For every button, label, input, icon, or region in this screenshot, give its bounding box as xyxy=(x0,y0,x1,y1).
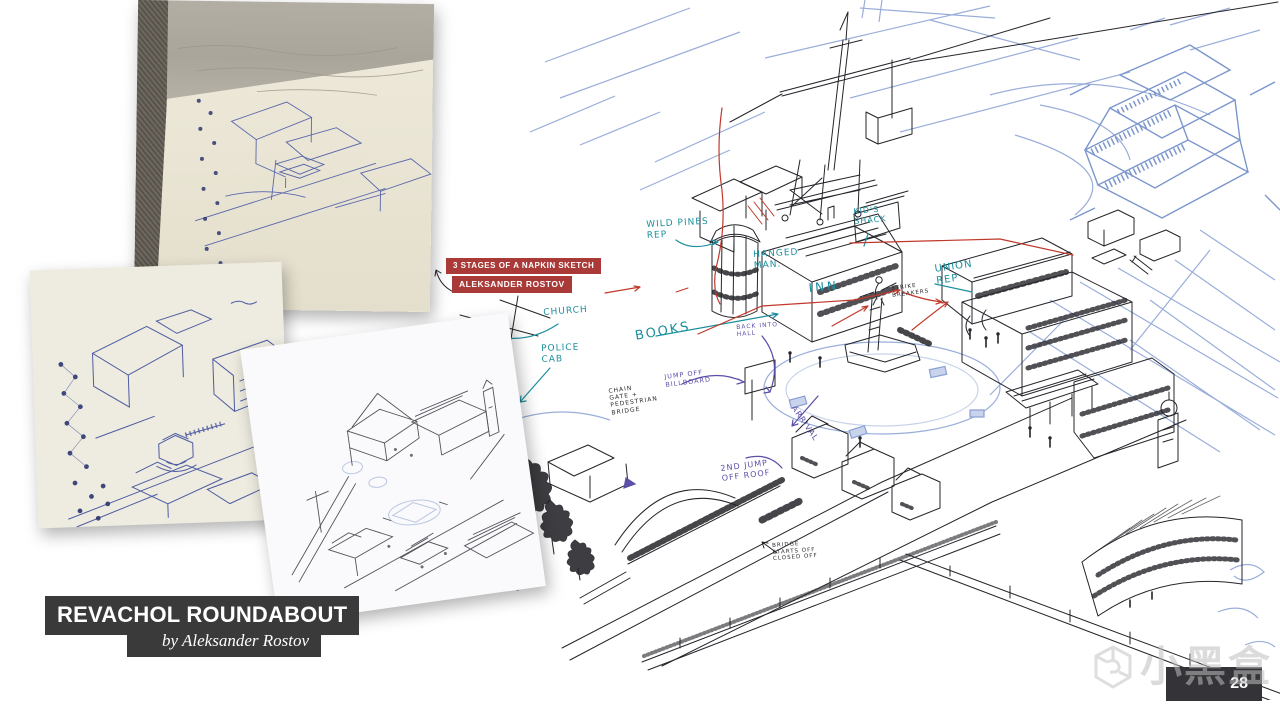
page-byline: by Aleksander Rostov xyxy=(127,627,321,657)
art-book-page: 3 STAGES OF A NAPKIN SKETCH ALEKSANDER R… xyxy=(0,0,1280,720)
red-arrows xyxy=(605,108,1073,334)
pencil-blue-layer xyxy=(490,0,1280,647)
ink-layer xyxy=(435,2,1280,700)
caption-line-1: 3 STAGES OF A NAPKIN SKETCH xyxy=(446,258,601,274)
page-number: 28 xyxy=(1230,675,1248,693)
purple-arrows xyxy=(624,336,818,488)
pencil-sketch xyxy=(240,313,546,624)
pencil-sketch-lines xyxy=(240,313,546,624)
main-isometric-sketch xyxy=(430,0,1280,700)
blue-building-cluster xyxy=(1070,45,1280,220)
caption-line-2: ALEKSANDER ROSTOV xyxy=(452,276,572,293)
page-number-badge: 28 xyxy=(1166,667,1262,701)
